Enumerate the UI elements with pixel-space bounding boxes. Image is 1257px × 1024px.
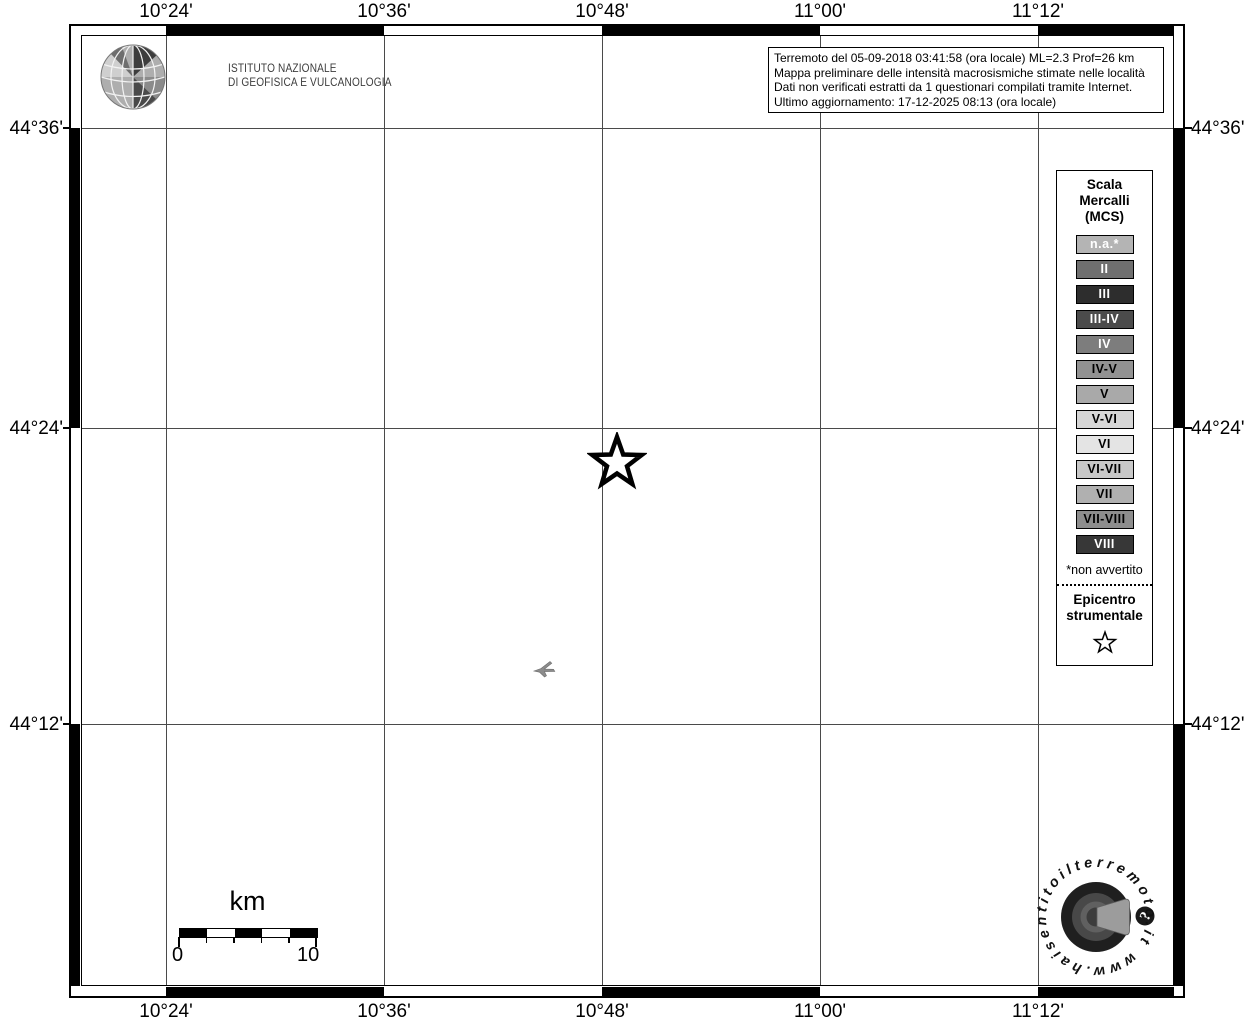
axis-label-top-2: 10°36'	[339, 1, 429, 23]
axis-label-right-1: 44°36'	[1191, 118, 1257, 140]
map-frame-inner	[81, 35, 1174, 986]
axis-tick	[1185, 427, 1192, 429]
axis-label-top-5: 11°12'	[993, 1, 1083, 23]
axis-label-left-2: 44°24'	[0, 418, 63, 440]
axis-label-bottom-1: 10°24'	[121, 1001, 211, 1023]
axis-label-bottom-4: 11°00'	[775, 1001, 865, 1023]
axis-label-left-1: 44°36'	[0, 118, 63, 140]
axis-label-left-3: 44°12'	[0, 714, 63, 736]
macroseismic-intensity-map: 10°24' 10°36' 10°48' 11°00' 11°12' 10°24…	[0, 0, 1257, 1024]
axis-label-top-4: 11°00'	[775, 1, 865, 23]
axis-label-right-2: 44°24'	[1191, 418, 1257, 440]
axis-tick	[1185, 127, 1192, 129]
axis-tick	[1185, 723, 1192, 725]
axis-label-bottom-5: 11°12'	[993, 1001, 1083, 1023]
axis-label-bottom-2: 10°36'	[339, 1001, 429, 1023]
axis-label-top-3: 10°48'	[557, 1, 647, 23]
axis-label-bottom-3: 10°48'	[557, 1001, 647, 1023]
axis-label-top-1: 10°24'	[121, 1, 211, 23]
axis-label-right-3: 44°12'	[1191, 714, 1257, 736]
